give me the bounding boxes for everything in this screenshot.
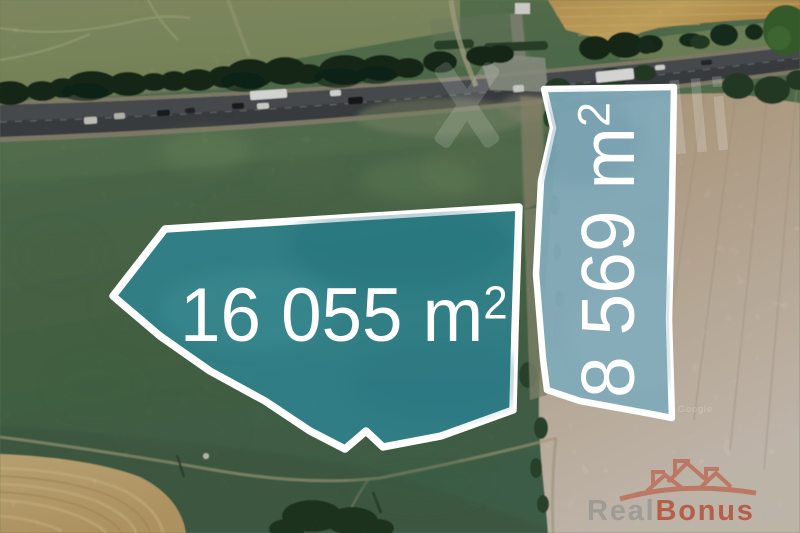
svg-text:8 569 m2: 8 569 m2 (566, 102, 650, 398)
svg-text:Google: Google (678, 404, 713, 414)
svg-text:16 055 m2: 16 055 m2 (180, 273, 508, 358)
